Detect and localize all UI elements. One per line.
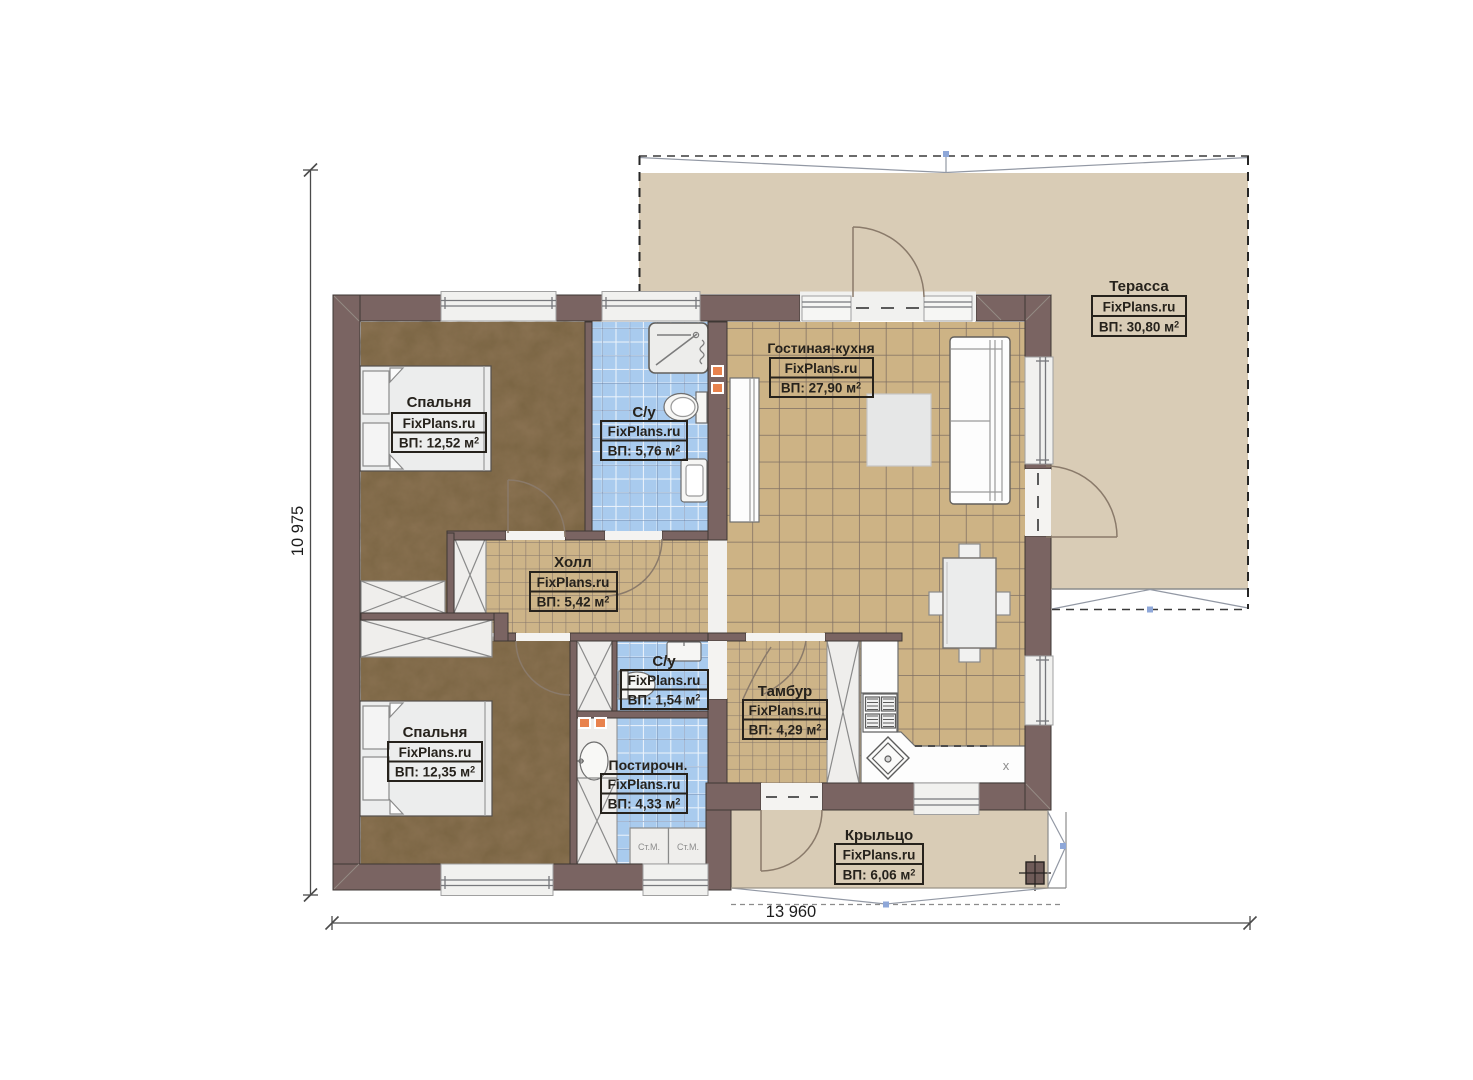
svg-text:Ст.М.: Ст.М.	[677, 842, 699, 852]
svg-text:С/у: С/у	[632, 404, 656, 421]
svg-text:FixPlans.ru: FixPlans.ru	[843, 848, 916, 863]
svg-text:Гостиная-кухня: Гостиная-кухня	[767, 340, 874, 356]
svg-text:FixPlans.ru: FixPlans.ru	[628, 673, 701, 688]
svg-text:FixPlans.ru: FixPlans.ru	[403, 416, 476, 431]
svg-text:Спальня: Спальня	[403, 724, 468, 741]
svg-text:ВП: 30,80 м2: ВП: 30,80 м2	[1099, 320, 1179, 335]
svg-text:FixPlans.ru: FixPlans.ru	[399, 745, 472, 760]
svg-text:ВП: 5,76 м2: ВП: 5,76 м2	[608, 444, 681, 459]
svg-text:FixPlans.ru: FixPlans.ru	[608, 777, 681, 792]
svg-text:FixPlans.ru: FixPlans.ru	[749, 703, 822, 718]
svg-text:FixPlans.ru: FixPlans.ru	[785, 361, 858, 376]
svg-text:ВП: 6,06 м2: ВП: 6,06 м2	[843, 868, 916, 883]
svg-text:Ст.М.: Ст.М.	[638, 842, 660, 852]
svg-text:ВП: 4,33 м2: ВП: 4,33 м2	[608, 797, 681, 812]
svg-text:ВП: 12,52 м2: ВП: 12,52 м2	[399, 436, 479, 451]
svg-text:Крыльцо: Крыльцо	[845, 827, 913, 844]
svg-text:13 960: 13 960	[766, 903, 816, 921]
svg-text:10 975: 10 975	[289, 506, 307, 556]
svg-text:Тамбур: Тамбур	[758, 683, 812, 700]
svg-text:Спальня: Спальня	[407, 394, 472, 411]
svg-text:ВП: 12,35 м2: ВП: 12,35 м2	[395, 765, 475, 780]
svg-text:ВП: 4,29 м2: ВП: 4,29 м2	[749, 723, 822, 738]
svg-text:Холл: Холл	[554, 554, 592, 571]
svg-text:FixPlans.ru: FixPlans.ru	[608, 424, 681, 439]
svg-text:Постирочн.: Постирочн.	[609, 757, 688, 773]
svg-text:Терасса: Терасса	[1109, 278, 1169, 295]
svg-text:FixPlans.ru: FixPlans.ru	[1103, 300, 1176, 315]
svg-text:ВП: 27,90 м2: ВП: 27,90 м2	[781, 381, 861, 396]
svg-text:ВП: 1,54 м2: ВП: 1,54 м2	[628, 693, 701, 708]
svg-text:FixPlans.ru: FixPlans.ru	[537, 575, 610, 590]
svg-text:ВП: 5,42 м2: ВП: 5,42 м2	[537, 595, 610, 610]
svg-text:С/у: С/у	[652, 653, 676, 670]
svg-text:x: x	[1003, 758, 1010, 773]
